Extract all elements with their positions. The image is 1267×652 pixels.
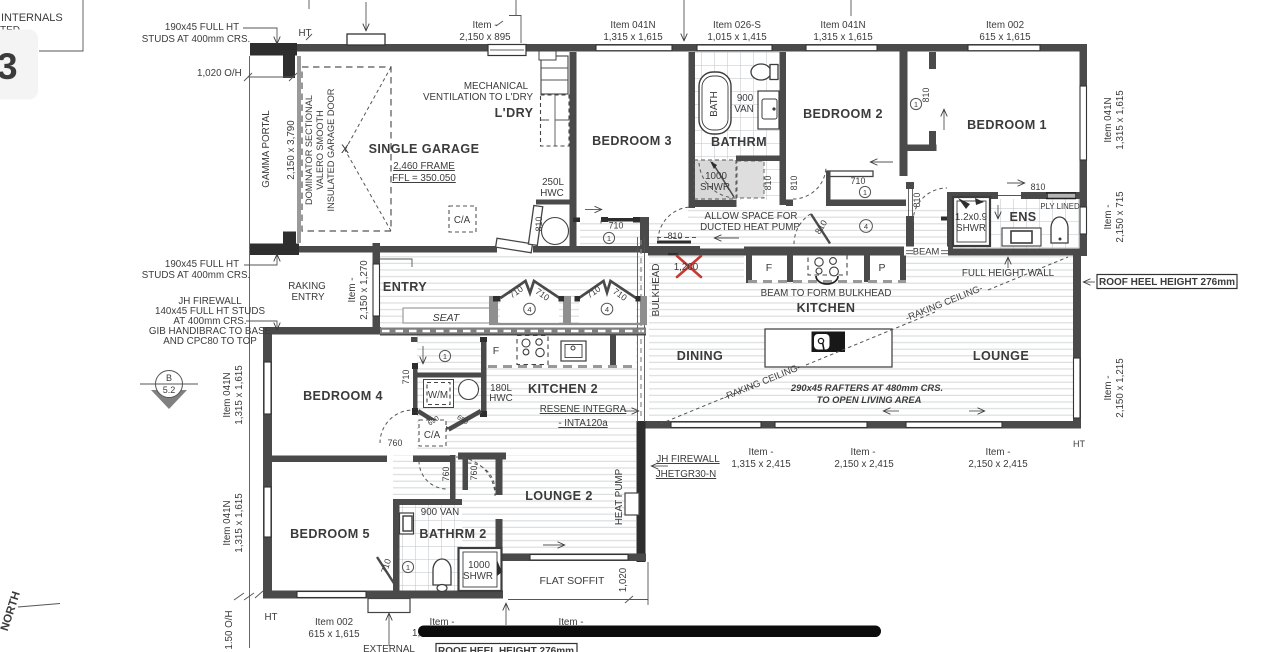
svg-text:HT: HT <box>264 612 277 623</box>
svg-text:4: 4 <box>527 305 531 314</box>
svg-text:VAN: VAN <box>734 104 753 115</box>
svg-text:Item 002: Item 002 <box>315 617 353 628</box>
svg-text:SHWR: SHWR <box>956 223 986 234</box>
svg-text:1,020: 1,020 <box>618 567 629 592</box>
svg-text:710: 710 <box>609 221 624 231</box>
svg-text:BEAM TO FORM BULKHEAD: BEAM TO FORM BULKHEAD <box>761 288 892 299</box>
svg-text:190x45 FULL HT: 190x45 FULL HT <box>165 259 239 270</box>
svg-text:INTERNALS: INTERNALS <box>1 12 63 24</box>
svg-text:810: 810 <box>763 176 773 191</box>
svg-text:STUDS AT 400mm CRS.: STUDS AT 400mm CRS. <box>142 34 251 45</box>
svg-text:Item -: Item - <box>472 20 497 31</box>
svg-text:ROOF HEEL HEIGHT 276mm: ROOF HEEL HEIGHT 276mm <box>1099 277 1235 288</box>
svg-text:BEDROOM 2: BEDROOM 2 <box>803 107 883 121</box>
svg-text:GAMMA PORTAL: GAMMA PORTAL <box>261 110 272 188</box>
svg-text:810: 810 <box>668 231 683 241</box>
svg-text:615 x 1,615: 615 x 1,615 <box>979 32 1031 43</box>
svg-text:ALLOW SPACE FOR: ALLOW SPACE FOR <box>705 211 798 222</box>
svg-text:L'DRY: L'DRY <box>495 106 534 120</box>
svg-text:F: F <box>766 262 772 274</box>
svg-text:DINING: DINING <box>677 349 723 363</box>
svg-text:JHETGR30-N: JHETGR30-N <box>656 469 716 480</box>
svg-text:SINGLE GARAGE: SINGLE GARAGE <box>369 142 480 156</box>
svg-text:3: 3 <box>0 46 18 87</box>
svg-text:2,150 x 1,270: 2,150 x 1,270 <box>359 260 370 320</box>
svg-text:1000: 1000 <box>468 560 490 571</box>
svg-text:1,315 x 2,415: 1,315 x 2,415 <box>731 459 791 470</box>
svg-text:Item 041N: Item 041N <box>222 372 233 417</box>
svg-text:BULKHEAD: BULKHEAD <box>651 264 662 317</box>
svg-text:1: 1 <box>914 100 918 109</box>
svg-text:Item 041N: Item 041N <box>820 20 865 31</box>
svg-text:760: 760 <box>441 467 451 482</box>
svg-text:Item 026-S: Item 026-S <box>713 20 761 31</box>
svg-text:4: 4 <box>864 222 868 231</box>
svg-text:C/A: C/A <box>424 430 441 441</box>
svg-text:SEAT: SEAT <box>433 312 461 324</box>
svg-text:Item -: Item - <box>347 277 358 302</box>
svg-text:4: 4 <box>605 305 609 314</box>
svg-text:810: 810 <box>1031 182 1046 192</box>
svg-text:- INTA120a: - INTA120a <box>558 418 608 429</box>
svg-text:1: 1 <box>607 234 611 243</box>
svg-text:C/A: C/A <box>454 215 471 226</box>
svg-text:710: 710 <box>401 370 411 385</box>
svg-text:FFL = 350.050: FFL = 350.050 <box>392 173 456 184</box>
svg-text:B: B <box>166 373 172 383</box>
svg-text:LOUNGE: LOUNGE <box>973 349 1029 363</box>
svg-text:Item -: Item - <box>1103 204 1114 229</box>
svg-text:KITCHEN 2: KITCHEN 2 <box>528 382 598 396</box>
svg-text:1,015 x 1,415: 1,015 x 1,415 <box>707 32 767 43</box>
svg-text:P: P <box>878 262 885 274</box>
svg-text:BEDROOM 5: BEDROOM 5 <box>290 527 370 541</box>
svg-text:1: 1 <box>406 563 410 572</box>
svg-text:BEDROOM 1: BEDROOM 1 <box>967 118 1047 132</box>
svg-text:810: 810 <box>921 88 931 103</box>
svg-text:Item 041N: Item 041N <box>222 500 233 545</box>
svg-text:290x45 RAFTERS AT 480mm CRS.: 290x45 RAFTERS AT 480mm CRS. <box>790 382 943 393</box>
svg-text:760: 760 <box>388 438 403 448</box>
svg-text:BEAM: BEAM <box>913 246 940 257</box>
svg-text:HT: HT <box>1073 439 1085 449</box>
svg-text:SHWR: SHWR <box>463 571 493 582</box>
svg-text:HEAT PUMP: HEAT PUMP <box>614 468 625 525</box>
svg-text:615 x 1,615: 615 x 1,615 <box>308 629 360 640</box>
svg-text:710: 710 <box>851 176 866 186</box>
svg-text:PLY LINED: PLY LINED <box>1040 202 1080 211</box>
svg-text:2,150 x 895: 2,150 x 895 <box>459 32 511 43</box>
svg-text:1: 1 <box>863 188 867 197</box>
svg-text:BEDROOM 4: BEDROOM 4 <box>303 389 383 403</box>
svg-text:810: 810 <box>789 176 799 191</box>
svg-text:RAKING: RAKING <box>288 281 326 292</box>
svg-text:2,460 FRAME: 2,460 FRAME <box>393 161 455 172</box>
svg-text:810: 810 <box>912 193 922 208</box>
svg-text:810: 810 <box>534 217 544 232</box>
svg-text:190x45 FULL HT: 190x45 FULL HT <box>165 22 239 33</box>
svg-text:Item -: Item - <box>985 447 1010 458</box>
svg-text:ENS: ENS <box>1009 210 1036 224</box>
svg-text:DUCTED HEAT PUMP: DUCTED HEAT PUMP <box>700 222 800 233</box>
svg-text:Item 041N: Item 041N <box>1103 97 1114 142</box>
svg-text:BEDROOM 3: BEDROOM 3 <box>592 134 672 148</box>
svg-text:2,150 x 1,215: 2,150 x 1,215 <box>1115 358 1126 418</box>
svg-text:KITCHEN: KITCHEN <box>797 301 856 315</box>
svg-text:ROOF HEEL HEIGHT 276mm: ROOF HEEL HEIGHT 276mm <box>438 646 574 652</box>
svg-text:SHWR: SHWR <box>700 182 730 193</box>
svg-text:1.2x0.9: 1.2x0.9 <box>955 212 987 223</box>
svg-text:MECHANICAL: MECHANICAL <box>464 81 529 92</box>
svg-text:900 VAN: 900 VAN <box>421 507 459 518</box>
svg-text:760: 760 <box>469 466 479 481</box>
svg-text:FULL HEIGHT WALL: FULL HEIGHT WALL <box>962 268 1055 279</box>
svg-text:VALERO SMOOTH: VALERO SMOOTH <box>315 110 325 189</box>
svg-text:BATH: BATH <box>709 91 720 116</box>
svg-text:STUDS AT 400mm CRS.: STUDS AT 400mm CRS. <box>142 270 251 281</box>
svg-text:1,315 x 1,615: 1,315 x 1,615 <box>603 32 663 43</box>
svg-text:RESENE INTEGRA: RESENE INTEGRA <box>540 404 627 415</box>
svg-text:JH FIREWALL: JH FIREWALL <box>656 454 720 465</box>
svg-text:HT: HT <box>298 28 311 39</box>
svg-text:F: F <box>493 345 499 357</box>
svg-text:1: 1 <box>443 352 447 361</box>
svg-text:2,150 x 2,415: 2,150 x 2,415 <box>968 459 1028 470</box>
svg-text:Item -: Item - <box>850 447 875 458</box>
svg-text:W/M: W/M <box>428 390 448 401</box>
svg-text:1,315 x 1,615: 1,315 x 1,615 <box>813 32 873 43</box>
svg-text:1000: 1000 <box>705 171 727 182</box>
svg-text:900: 900 <box>737 93 754 104</box>
svg-text:1,315 x 1,615: 1,315 x 1,615 <box>234 365 245 425</box>
svg-text:HWC: HWC <box>540 188 563 199</box>
svg-text:EXTERNAL: EXTERNAL <box>363 644 415 652</box>
svg-text:5.2: 5.2 <box>163 385 176 395</box>
svg-text:Item 041N: Item 041N <box>610 20 655 31</box>
svg-text:1,315 x 1,615: 1,315 x 1,615 <box>234 493 245 553</box>
svg-text:INSULATED GARAGE DOOR: INSULATED GARAGE DOOR <box>326 88 336 211</box>
svg-text:LOUNGE 2: LOUNGE 2 <box>525 489 593 503</box>
svg-text:FLAT SOFFIT: FLAT SOFFIT <box>540 575 606 587</box>
svg-text:HWC: HWC <box>489 393 512 404</box>
svg-text:250L: 250L <box>542 177 564 188</box>
svg-text:DOMINATOR SECTIONAL: DOMINATOR SECTIONAL <box>304 95 314 205</box>
svg-text:1,315 x 1,615: 1,315 x 1,615 <box>1115 90 1126 150</box>
svg-text:1,200: 1,200 <box>674 262 699 273</box>
svg-text:2,150 x 2,415: 2,150 x 2,415 <box>834 459 894 470</box>
svg-text:AND CPC80 TO TOP: AND CPC80 TO TOP <box>163 336 257 347</box>
svg-text:2,150 x 715: 2,150 x 715 <box>1115 191 1126 243</box>
svg-text:VENTILATION TO L'DRY: VENTILATION TO L'DRY <box>423 92 533 103</box>
svg-text:Item -: Item - <box>748 447 773 458</box>
svg-text:BATHRM 2: BATHRM 2 <box>419 527 486 541</box>
svg-text:ENTRY: ENTRY <box>291 292 324 303</box>
svg-text:Item 002: Item 002 <box>986 20 1024 31</box>
svg-text:X: X <box>341 142 349 156</box>
svg-text:2,150 x 3,790: 2,150 x 3,790 <box>286 120 297 180</box>
svg-text:Item -: Item - <box>1103 375 1114 400</box>
svg-text:1,020 O/H: 1,020 O/H <box>197 68 242 79</box>
svg-text:1.50 O/H: 1.50 O/H <box>224 610 235 649</box>
svg-text:ENTRY: ENTRY <box>383 280 427 294</box>
svg-text:TO OPEN LIVING AREA: TO OPEN LIVING AREA <box>817 394 922 405</box>
svg-text:BATHRM: BATHRM <box>711 135 767 149</box>
